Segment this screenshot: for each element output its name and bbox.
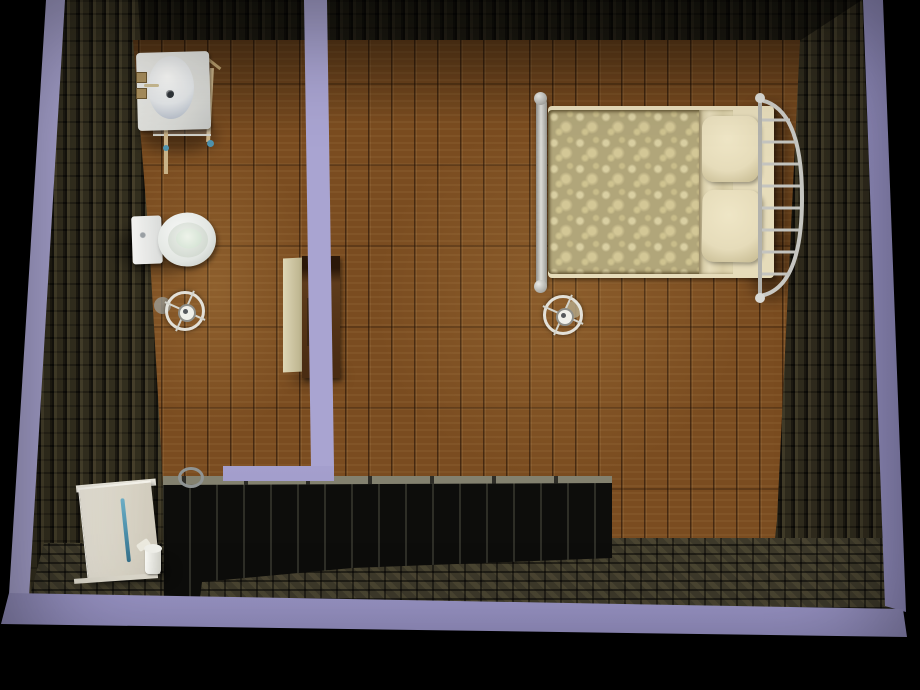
lamp-core bbox=[183, 309, 188, 314]
toilet[interactable] bbox=[127, 208, 221, 271]
bed-headboard bbox=[752, 90, 808, 306]
game-viewport bbox=[0, 0, 920, 690]
bed-knob bbox=[534, 92, 547, 105]
faucet-handle bbox=[136, 88, 147, 99]
sink-drain-icon bbox=[166, 90, 174, 98]
faucet-handle bbox=[136, 72, 147, 83]
double-bed[interactable] bbox=[533, 90, 813, 306]
bathroom-ceiling-lamp[interactable] bbox=[162, 288, 208, 334]
sink-basin bbox=[148, 56, 194, 119]
sink-foot bbox=[163, 145, 169, 151]
sink-foot bbox=[207, 140, 214, 147]
cup[interactable] bbox=[145, 548, 161, 574]
open-door[interactable] bbox=[66, 472, 178, 592]
door-handle bbox=[120, 498, 131, 562]
bed-footboard bbox=[536, 98, 547, 290]
bed-pillow bbox=[702, 116, 759, 182]
bed-blanket bbox=[548, 110, 701, 274]
latch-ring bbox=[178, 467, 204, 488]
bedroom-ceiling-lamp[interactable] bbox=[540, 292, 586, 338]
lamp-core bbox=[561, 313, 566, 318]
faucet-spout bbox=[144, 84, 159, 87]
pedestal-sink[interactable] bbox=[133, 46, 225, 154]
dresser-top-edge bbox=[283, 257, 303, 372]
